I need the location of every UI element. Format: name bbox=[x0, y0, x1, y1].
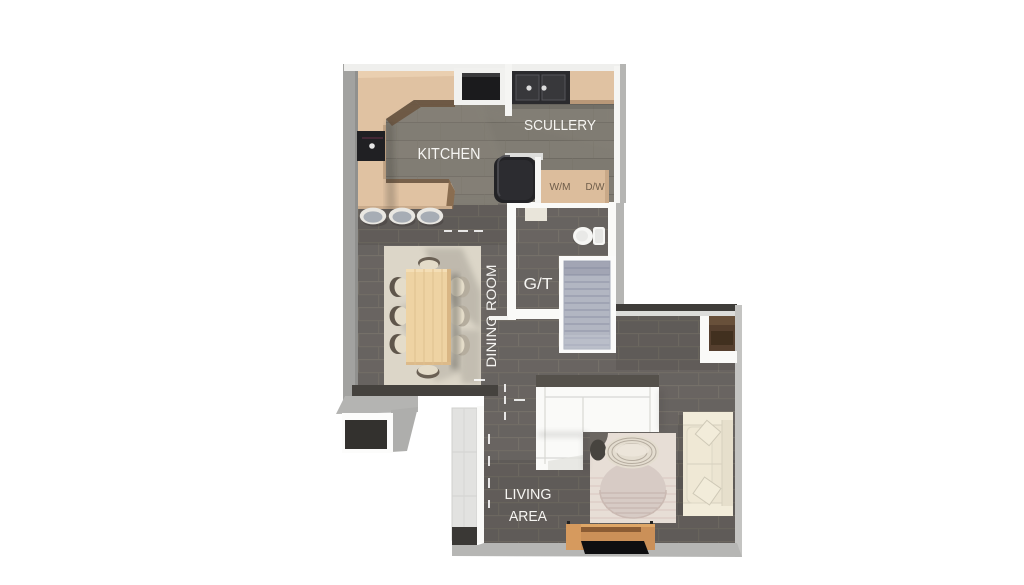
svg-text:G/T: G/T bbox=[524, 276, 554, 293]
svg-text:SCULLERY: SCULLERY bbox=[524, 117, 596, 134]
svg-text:KITCHEN: KITCHEN bbox=[418, 146, 481, 163]
svg-text:D/W: D/W bbox=[586, 181, 605, 193]
svg-text:DINING ROOM: DINING ROOM bbox=[483, 265, 499, 368]
svg-text:LIVING: LIVING bbox=[505, 486, 552, 503]
svg-text:AREA: AREA bbox=[509, 508, 547, 525]
svg-text:W/M: W/M bbox=[550, 181, 571, 193]
